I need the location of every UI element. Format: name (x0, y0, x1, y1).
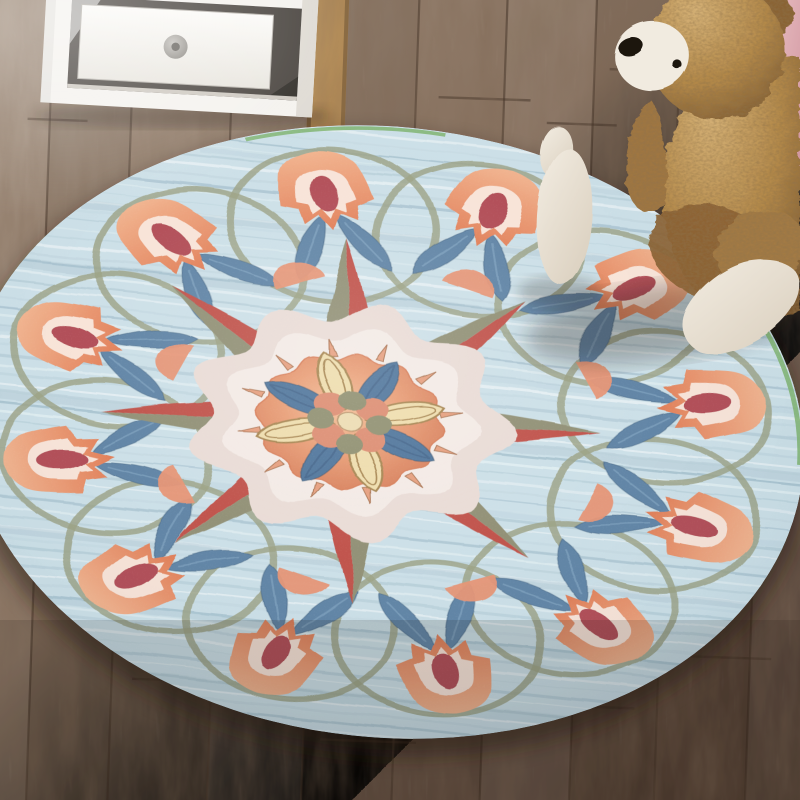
photo-stage (0, 0, 800, 800)
bear-eye-icon (672, 59, 681, 68)
bottom-vignette (0, 620, 800, 800)
scene (0, 0, 800, 800)
